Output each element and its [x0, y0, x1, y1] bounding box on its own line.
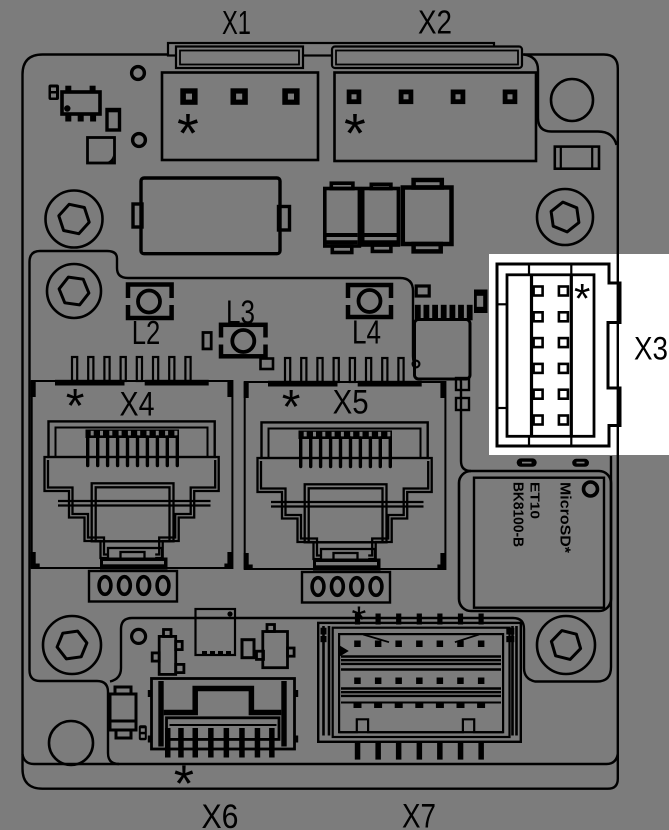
svg-text:*: *: [177, 102, 199, 165]
svg-text:L2: L2: [132, 314, 161, 351]
svg-text:*: *: [66, 380, 85, 433]
svg-text:L4: L4: [352, 314, 381, 351]
svg-text:*: *: [282, 381, 301, 434]
svg-text:X1: X1: [222, 4, 251, 41]
svg-text:X7: X7: [402, 798, 436, 830]
svg-text:X2: X2: [418, 4, 452, 41]
svg-text:X4: X4: [120, 386, 155, 424]
svg-text:X5: X5: [333, 384, 369, 422]
svg-text:L3: L3: [226, 294, 255, 331]
svg-text:ET10: ET10: [528, 482, 543, 519]
svg-text:X6: X6: [202, 798, 239, 830]
svg-text:BK8100-B: BK8100-B: [510, 482, 526, 547]
svg-text:*: *: [574, 275, 590, 322]
svg-text:*: *: [344, 102, 366, 165]
svg-text:*: *: [174, 756, 194, 814]
svg-text:MicroSD*: MicroSD*: [557, 482, 573, 553]
svg-text:*: *: [352, 600, 367, 642]
svg-text:X3: X3: [634, 331, 668, 367]
